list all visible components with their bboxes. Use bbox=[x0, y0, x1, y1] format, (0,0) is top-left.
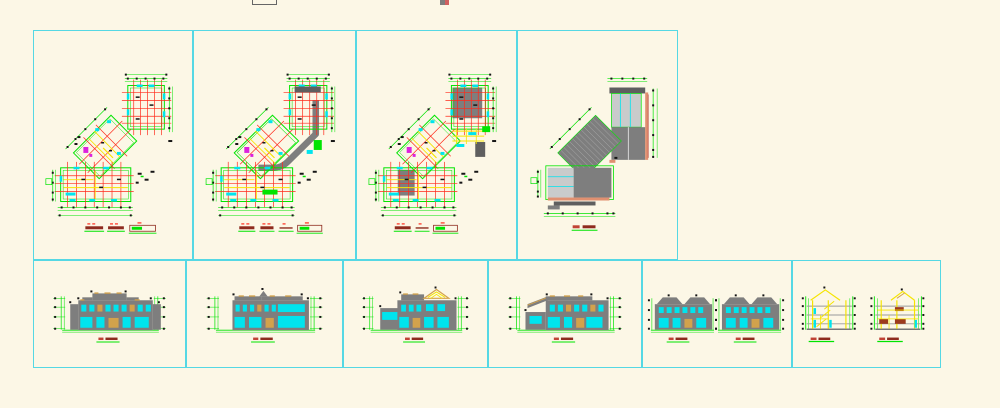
viewport-frame-elevation-2[interactable] bbox=[186, 260, 343, 368]
viewport-frame-section-pair[interactable] bbox=[792, 260, 941, 368]
viewport-frame-roof-plan[interactable] bbox=[517, 30, 678, 260]
viewport-frame-floor-plan-2[interactable] bbox=[193, 30, 356, 260]
drawing-title-mark bbox=[129, 222, 157, 233]
drawing-title-mark bbox=[84, 223, 104, 231]
viewport-frame-floor-plan-3[interactable] bbox=[356, 30, 517, 260]
viewport-frame-elevation-1[interactable] bbox=[33, 260, 186, 368]
cad-layout-canvas bbox=[0, 0, 1000, 408]
partial-gray-red-mark bbox=[440, 0, 449, 5]
partial-box bbox=[252, 0, 277, 5]
elevation-pair-drawing bbox=[643, 261, 791, 367]
elevation-2-drawing bbox=[187, 261, 342, 367]
drawing-title-mark bbox=[238, 223, 255, 231]
viewport-frame-elevation-pair[interactable] bbox=[642, 260, 792, 368]
floor-plan-1-drawing bbox=[34, 31, 192, 259]
drawing-title-mark bbox=[107, 223, 125, 231]
viewport-frame-elevation-3[interactable] bbox=[343, 260, 488, 368]
viewport-frame-elevation-4[interactable] bbox=[488, 260, 642, 368]
roof-plan-drawing bbox=[518, 31, 677, 259]
drawing-title-mark bbox=[279, 223, 294, 231]
drawing-title-mark bbox=[433, 222, 459, 233]
elevation-1-drawing bbox=[34, 261, 185, 367]
floor-plan-2-drawing bbox=[194, 31, 355, 259]
elevation-4-drawing bbox=[489, 261, 641, 367]
drawing-title-mark bbox=[415, 223, 430, 231]
drawing-title-mark bbox=[394, 223, 412, 231]
section-pair-drawing bbox=[793, 261, 940, 367]
drawing-title-mark bbox=[297, 222, 323, 233]
viewport-frame-floor-plan-1[interactable] bbox=[33, 30, 193, 260]
drawing-title-mark bbox=[259, 223, 274, 231]
elevation-3-drawing bbox=[344, 261, 487, 367]
floor-plan-3-drawing bbox=[357, 31, 516, 259]
